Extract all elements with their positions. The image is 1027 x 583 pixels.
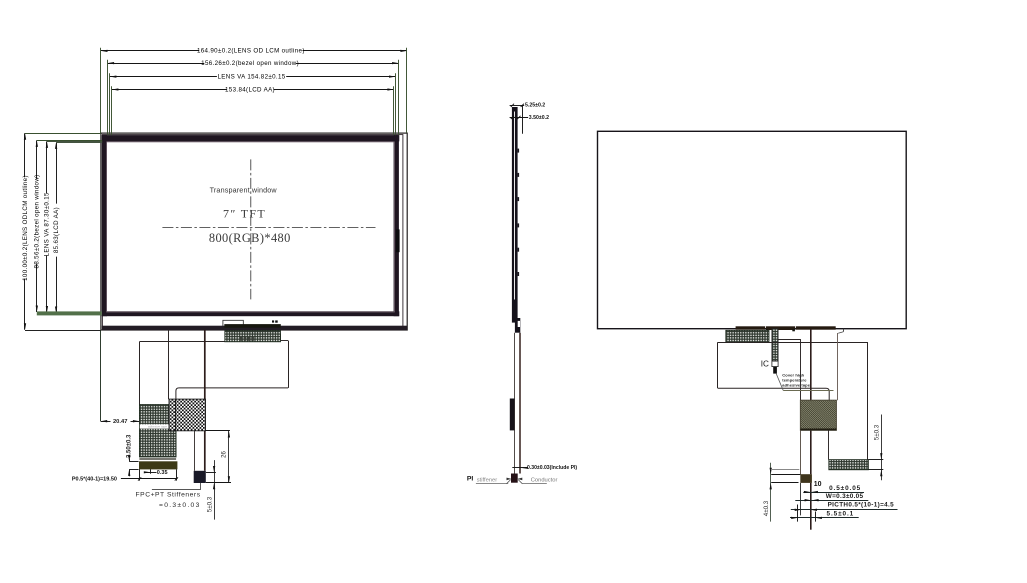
svg-text:IC: IC [761, 359, 769, 368]
svg-text:LENS VA 87.30±0.15: LENS VA 87.30±0.15 [44, 192, 51, 256]
svg-text:stiffener: stiffener [477, 477, 498, 483]
svg-text:0.30±0.03(Include PI): 0.30±0.03(Include PI) [527, 465, 577, 471]
svg-text:85.63(LCD AA): 85.63(LCD AA) [53, 207, 60, 253]
svg-text:20.47: 20.47 [113, 419, 128, 425]
svg-text:0.35: 0.35 [157, 470, 168, 476]
svg-text:5.25±0.2: 5.25±0.2 [525, 103, 545, 109]
svg-text:10: 10 [814, 481, 822, 488]
svg-text:5±0.3: 5±0.3 [874, 424, 881, 440]
svg-text:Transparent window: Transparent window [210, 186, 278, 195]
svg-text:=0.3±0.03: =0.3±0.03 [159, 502, 201, 509]
svg-text:FPC+PT Stiffeners: FPC+PT Stiffeners [136, 492, 201, 499]
svg-text:7″ TFT: 7″ TFT [223, 206, 266, 220]
svg-text:Conductor: Conductor [531, 477, 558, 483]
svg-text:PICTH0.5*(10-1)=4.5: PICTH0.5*(10-1)=4.5 [828, 502, 895, 509]
svg-text:88.56±0.2(bezel open window): 88.56±0.2(bezel open window) [34, 174, 41, 268]
svg-text:0.5±0.05: 0.5±0.05 [829, 485, 861, 492]
svg-text:153.84(LCD AA): 153.84(LCD AA) [225, 86, 275, 93]
svg-text:100.00±0.2(LENS ODLCM outline): 100.00±0.2(LENS ODLCM outline) [22, 175, 29, 281]
svg-text:P0.5*(40-1)=19.50: P0.5*(40-1)=19.50 [72, 476, 117, 482]
svg-text:5.5±0.1: 5.5±0.1 [827, 510, 855, 517]
svg-text:156.26±0.2(bezel open window): 156.26±0.2(bezel open window) [201, 60, 299, 67]
svg-text:W=0.3±0.05: W=0.3±0.05 [826, 493, 864, 500]
svg-text:164.90±0.2(LENS OD LCM outline: 164.90±0.2(LENS OD LCM outline) [197, 48, 305, 55]
svg-text:800(RGB)*480: 800(RGB)*480 [209, 231, 291, 245]
svg-text:26: 26 [221, 451, 227, 458]
svg-text:adhesive tape: adhesive tape [148, 425, 168, 429]
svg-text:4±0.3: 4±0.3 [763, 500, 770, 516]
svg-text:3.50±0.2: 3.50±0.2 [529, 115, 549, 121]
svg-text:5±0.3: 5±0.3 [207, 496, 214, 512]
svg-text:adhesive tape: adhesive tape [782, 382, 810, 387]
svg-text:3.50±0.3: 3.50±0.3 [126, 434, 132, 458]
svg-text:LENS VA 154.82±0.15: LENS VA 154.82±0.15 [218, 73, 286, 80]
svg-text:PI: PI [467, 475, 474, 482]
